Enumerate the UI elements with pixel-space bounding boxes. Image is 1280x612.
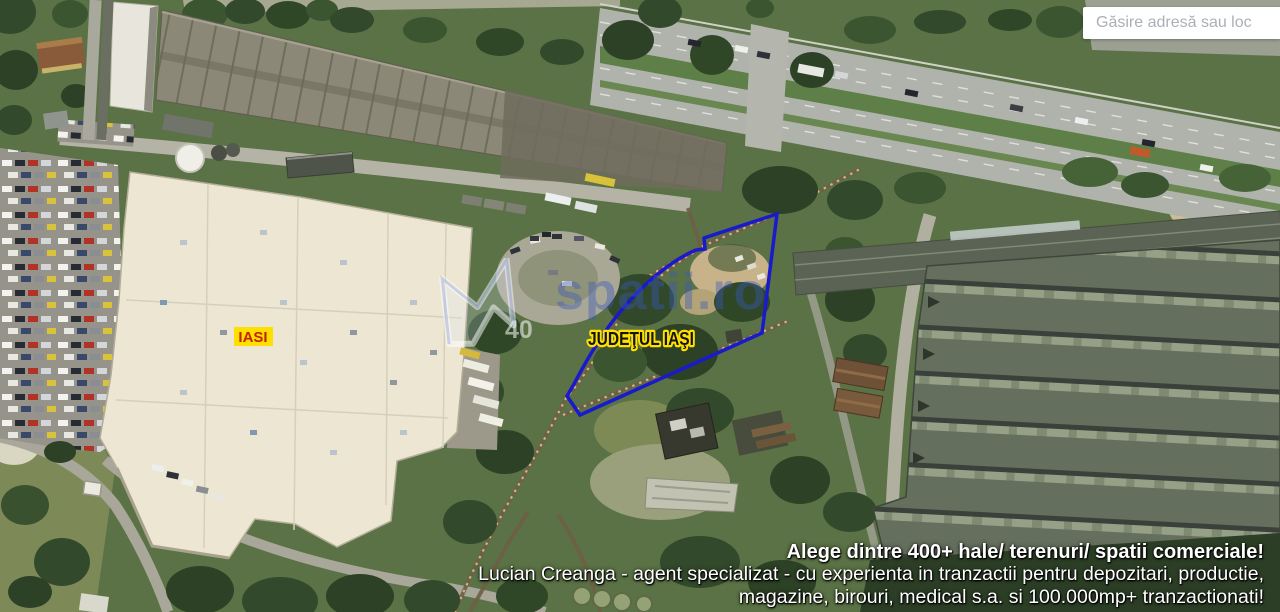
city-label: IASI (238, 329, 267, 346)
promo-line2: Lucian Creanga - agent specializat - cu … (478, 563, 1264, 586)
storage-tank (211, 145, 227, 161)
real-estate-listing-screenshot: IASI JUDEŢUL IAŞI spatii.ro 40 Alege din… (0, 0, 1280, 612)
small-building (43, 110, 69, 129)
promo-line3: magazine, birouri, medical s.a. si 100.0… (478, 586, 1264, 609)
promo-line1: Alege dintre 400+ hale/ terenuri/ spatii… (478, 541, 1264, 564)
satellite-map[interactable]: IASI JUDEŢUL IAŞI (0, 0, 1280, 612)
promo-caption: Alege dintre 400+ hale/ terenuri/ spatii… (478, 541, 1264, 609)
warehouse-complex (873, 240, 1280, 572)
house (36, 37, 86, 74)
storage-tank (176, 144, 204, 172)
storage-tank (226, 143, 240, 157)
county-label: JUDEŢUL IAŞI (588, 328, 694, 349)
search-input[interactable] (1083, 7, 1280, 39)
ruin-debris (645, 478, 738, 512)
